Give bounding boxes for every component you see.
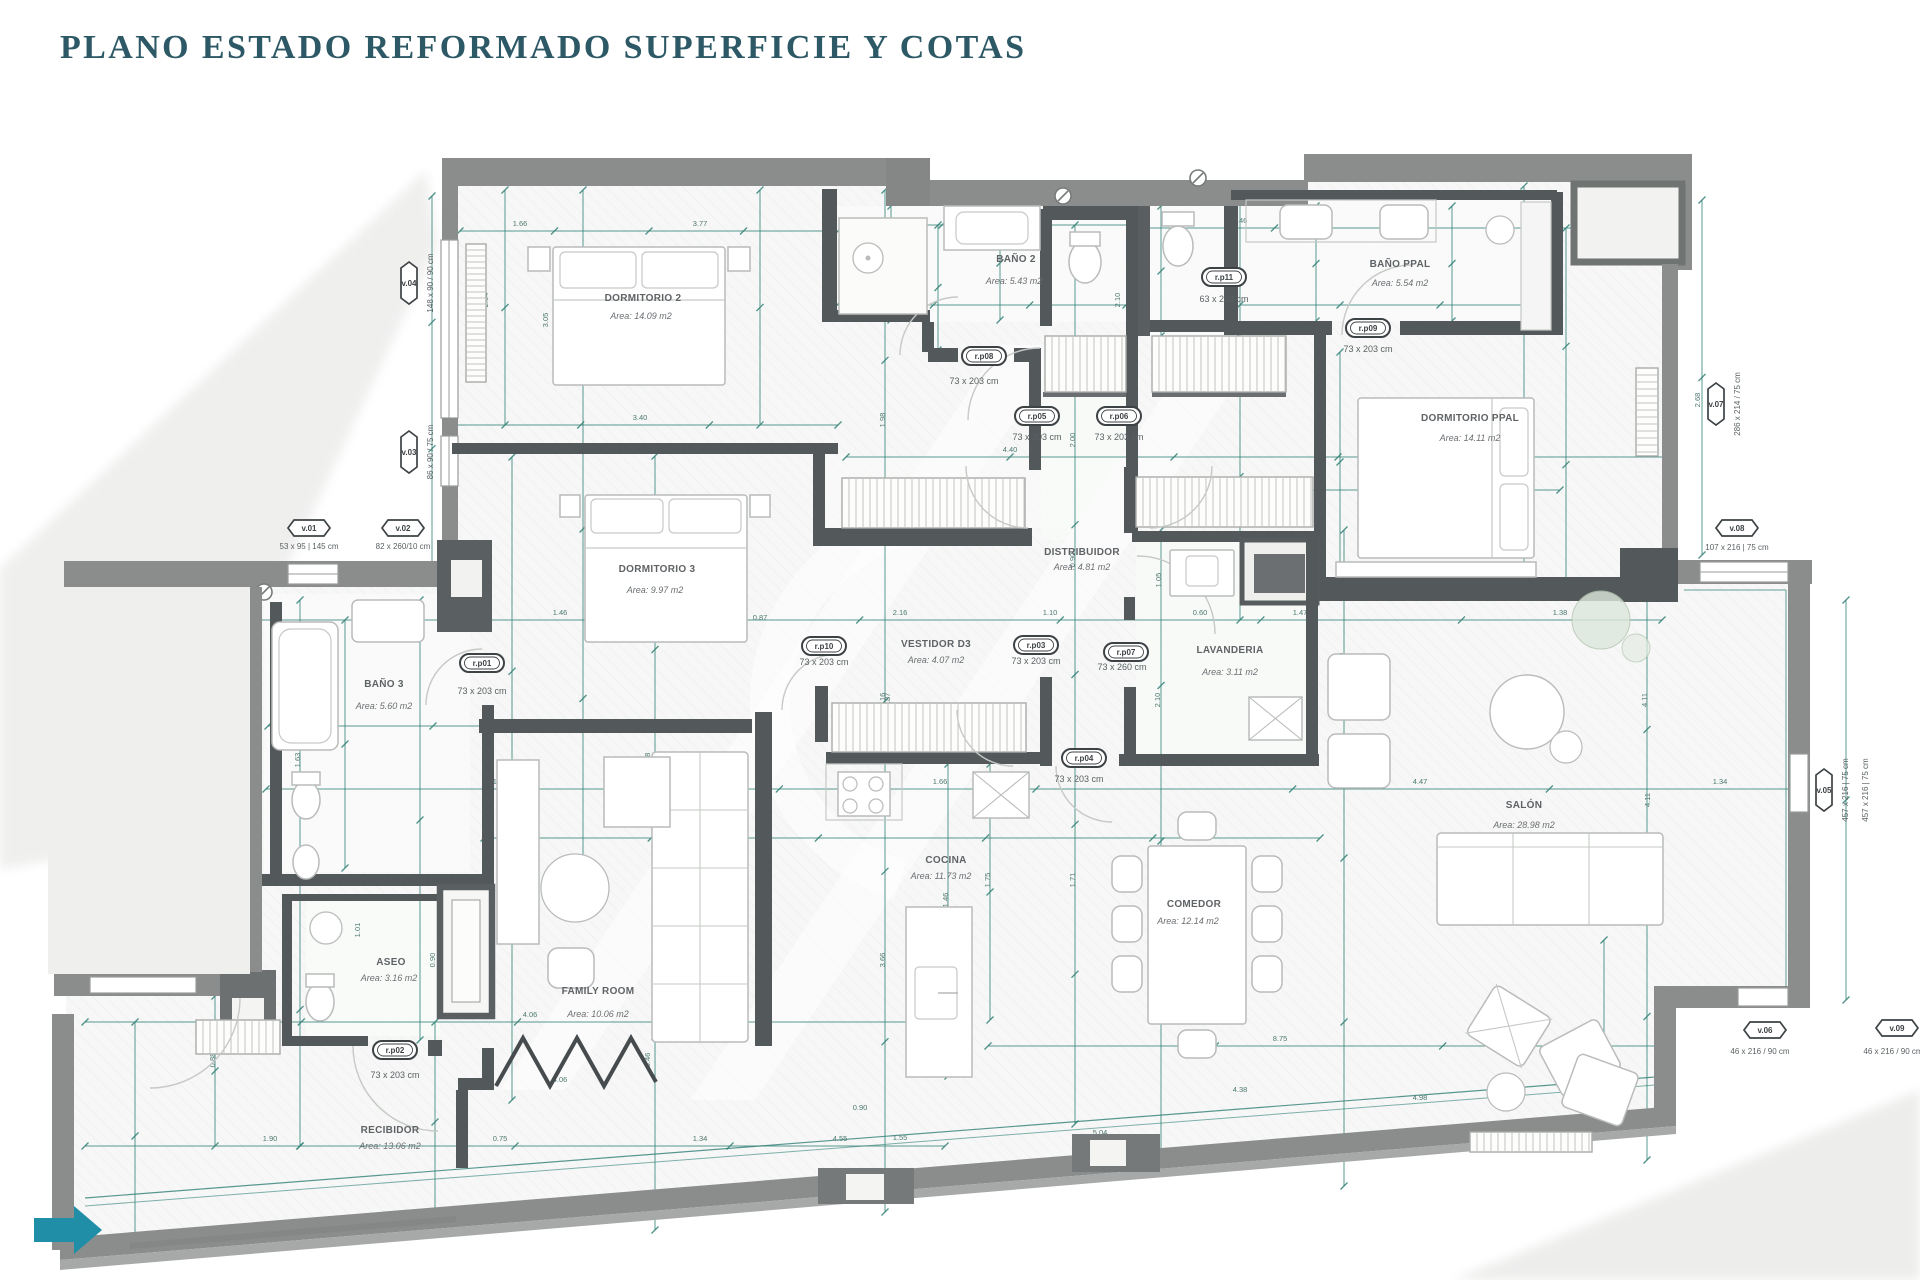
svg-text:RECIBIDOR: RECIBIDOR bbox=[361, 1125, 420, 1136]
svg-text:PLANO ESTADO REFORMADO SUPERFI: PLANO ESTADO REFORMADO SUPERFICIE Y COTA… bbox=[60, 29, 1026, 66]
svg-text:1.71: 1.71 bbox=[1068, 873, 1077, 888]
svg-text:v.06: v.06 bbox=[1758, 1026, 1774, 1035]
svg-text:Area: 12.14 m2: Area: 12.14 m2 bbox=[1156, 916, 1219, 926]
svg-text:457 x 216 | 75 cm: 457 x 216 | 75 cm bbox=[1841, 758, 1850, 822]
svg-text:r.p03: r.p03 bbox=[1027, 641, 1046, 650]
svg-text:r.p01: r.p01 bbox=[473, 659, 492, 668]
svg-text:LAVANDERIA: LAVANDERIA bbox=[1196, 645, 1263, 656]
svg-text:4.38: 4.38 bbox=[1233, 1085, 1248, 1094]
svg-text:2.00: 2.00 bbox=[1068, 433, 1077, 448]
svg-text:BAÑO 3: BAÑO 3 bbox=[364, 677, 404, 690]
svg-text:86 x 90 / 75 cm: 86 x 90 / 75 cm bbox=[426, 424, 435, 479]
svg-text:73 x 203 cm: 73 x 203 cm bbox=[1054, 774, 1103, 784]
svg-text:r.p11: r.p11 bbox=[1215, 273, 1234, 282]
svg-text:r.p05: r.p05 bbox=[1028, 412, 1047, 421]
svg-text:1.63: 1.63 bbox=[293, 753, 302, 768]
svg-text:1.34: 1.34 bbox=[693, 1134, 708, 1143]
svg-text:82 x 260/10 cm: 82 x 260/10 cm bbox=[376, 542, 431, 551]
svg-text:ASEO: ASEO bbox=[376, 957, 406, 968]
svg-text:3.77: 3.77 bbox=[693, 219, 708, 228]
svg-text:4.98: 4.98 bbox=[1413, 1093, 1428, 1102]
svg-text:v.08: v.08 bbox=[1730, 524, 1746, 533]
svg-text:457 x 216 | 75 cm: 457 x 216 | 75 cm bbox=[1861, 758, 1870, 822]
svg-text:63 x 203 cm: 63 x 203 cm bbox=[1199, 294, 1248, 304]
svg-text:0.75: 0.75 bbox=[493, 1134, 508, 1143]
svg-text:73 x 203 cm: 73 x 203 cm bbox=[949, 376, 998, 386]
svg-text:2.16: 2.16 bbox=[893, 608, 908, 617]
svg-text:1.90: 1.90 bbox=[263, 1134, 278, 1143]
svg-text:1.05: 1.05 bbox=[1154, 573, 1163, 588]
svg-text:1.98: 1.98 bbox=[878, 413, 887, 428]
svg-text:Area: 10.06 m2: Area: 10.06 m2 bbox=[566, 1009, 629, 1019]
svg-text:148 x 90 / 90 cm: 148 x 90 / 90 cm bbox=[426, 253, 435, 312]
svg-text:DORMITORIO PPAL: DORMITORIO PPAL bbox=[1421, 413, 1519, 424]
svg-text:r.p08: r.p08 bbox=[975, 352, 994, 361]
svg-text:Area: 28.98 m2: Area: 28.98 m2 bbox=[1492, 820, 1555, 830]
svg-text:4.11: 4.11 bbox=[1643, 793, 1652, 807]
svg-text:Area: 4.81 m2: Area: 4.81 m2 bbox=[1053, 562, 1111, 572]
svg-text:1.10: 1.10 bbox=[1043, 608, 1058, 617]
svg-text:Area: 14.09 m2: Area: 14.09 m2 bbox=[609, 311, 672, 321]
svg-text:BAÑO PPAL: BAÑO PPAL bbox=[1370, 257, 1431, 270]
svg-text:1.66: 1.66 bbox=[933, 777, 948, 786]
svg-text:r.p09: r.p09 bbox=[1359, 324, 1378, 333]
svg-text:1.55: 1.55 bbox=[893, 1133, 908, 1142]
svg-text:4.06: 4.06 bbox=[523, 1010, 538, 1019]
svg-text:Area: 5.43 m2: Area: 5.43 m2 bbox=[985, 276, 1043, 286]
svg-text:3.40: 3.40 bbox=[633, 413, 648, 422]
svg-text:1.38: 1.38 bbox=[1553, 608, 1568, 617]
svg-text:Area: 5.54 m2: Area: 5.54 m2 bbox=[1371, 278, 1429, 288]
svg-text:4.55: 4.55 bbox=[833, 1134, 848, 1143]
svg-text:2.10: 2.10 bbox=[1113, 293, 1122, 308]
svg-text:73 x 203 cm: 73 x 203 cm bbox=[1011, 656, 1060, 666]
svg-text:73 x 203 cm: 73 x 203 cm bbox=[457, 686, 506, 696]
svg-text:v.05: v.05 bbox=[1817, 786, 1833, 795]
svg-text:4.47: 4.47 bbox=[1413, 777, 1428, 786]
svg-text:46 x 216 / 90 cm: 46 x 216 / 90 cm bbox=[1863, 1047, 1920, 1056]
svg-text:73 x 203 cm: 73 x 203 cm bbox=[1343, 344, 1392, 354]
svg-text:r.p04: r.p04 bbox=[1075, 754, 1094, 763]
svg-text:73 x 203 cm: 73 x 203 cm bbox=[1094, 432, 1143, 442]
svg-text:FAMILY ROOM: FAMILY ROOM bbox=[562, 986, 635, 997]
svg-text:0.87: 0.87 bbox=[753, 613, 768, 622]
svg-text:Area: 3.11 m2: Area: 3.11 m2 bbox=[1201, 667, 1258, 677]
svg-text:r.p07: r.p07 bbox=[1117, 648, 1136, 657]
svg-text:73 x 203 cm: 73 x 203 cm bbox=[1012, 432, 1061, 442]
svg-text:1.75: 1.75 bbox=[983, 873, 992, 888]
svg-text:Area: 13.06 m2: Area: 13.06 m2 bbox=[358, 1141, 421, 1151]
svg-text:COMEDOR: COMEDOR bbox=[1167, 899, 1222, 910]
svg-text:2.10: 2.10 bbox=[1153, 693, 1162, 708]
svg-text:v.03: v.03 bbox=[402, 448, 418, 457]
svg-text:1.34: 1.34 bbox=[1713, 777, 1728, 786]
svg-text:DORMITORIO 3: DORMITORIO 3 bbox=[619, 564, 696, 575]
svg-text:r.p10: r.p10 bbox=[815, 642, 834, 651]
svg-text:0.90: 0.90 bbox=[428, 953, 437, 968]
svg-text:0.60: 0.60 bbox=[1193, 608, 1208, 617]
svg-text:0.90: 0.90 bbox=[853, 1103, 868, 1112]
svg-text:Area: 5.60 m2: Area: 5.60 m2 bbox=[355, 701, 413, 711]
svg-text:r.p02: r.p02 bbox=[386, 1046, 405, 1055]
svg-text:Area: 4.07 m2: Area: 4.07 m2 bbox=[907, 655, 965, 665]
svg-text:BAÑO 2: BAÑO 2 bbox=[996, 252, 1036, 265]
svg-text:4.11: 4.11 bbox=[1640, 693, 1649, 707]
svg-text:53 x 95 | 145 cm: 53 x 95 | 145 cm bbox=[280, 542, 339, 551]
svg-text:1.66: 1.66 bbox=[513, 219, 528, 228]
svg-text:3.66: 3.66 bbox=[878, 953, 887, 968]
svg-text:1.01: 1.01 bbox=[353, 923, 362, 938]
svg-text:r.p06: r.p06 bbox=[1110, 412, 1129, 421]
svg-text:1.46: 1.46 bbox=[941, 893, 950, 908]
svg-text:73 x 260 cm: 73 x 260 cm bbox=[1097, 662, 1146, 672]
svg-text:DISTRIBUIDOR: DISTRIBUIDOR bbox=[1044, 547, 1120, 558]
svg-text:Area: 3.16 m2: Area: 3.16 m2 bbox=[360, 973, 418, 983]
svg-text:VESTIDOR D3: VESTIDOR D3 bbox=[901, 639, 971, 650]
svg-text:Area: 14.11 m2: Area: 14.11 m2 bbox=[1439, 433, 1501, 443]
svg-text:v.07: v.07 bbox=[1709, 400, 1725, 409]
svg-text:1.47: 1.47 bbox=[1293, 608, 1308, 617]
svg-text:107 x 216 | 75 cm: 107 x 216 | 75 cm bbox=[1705, 543, 1769, 552]
svg-text:DORMITORIO 2: DORMITORIO 2 bbox=[605, 293, 682, 304]
svg-text:SALÓN: SALÓN bbox=[1506, 798, 1543, 811]
svg-text:Area: 11.73 m2: Area: 11.73 m2 bbox=[910, 871, 972, 881]
svg-text:v.01: v.01 bbox=[302, 524, 318, 533]
svg-text:v.09: v.09 bbox=[1890, 1024, 1906, 1033]
svg-text:8.75: 8.75 bbox=[1273, 1034, 1288, 1043]
svg-text:286 x 214 / 75 cm: 286 x 214 / 75 cm bbox=[1733, 372, 1742, 436]
svg-text:3.05: 3.05 bbox=[541, 313, 550, 328]
svg-text:2.68: 2.68 bbox=[1693, 393, 1702, 408]
svg-text:1.46: 1.46 bbox=[553, 608, 568, 617]
svg-text:4.40: 4.40 bbox=[1003, 445, 1018, 454]
svg-text:COCINA: COCINA bbox=[925, 855, 966, 866]
svg-text:46 x 216 / 90 cm: 46 x 216 / 90 cm bbox=[1730, 1047, 1789, 1056]
svg-text:Area: 9.97 m2: Area: 9.97 m2 bbox=[626, 585, 684, 595]
svg-text:73 x 203 cm: 73 x 203 cm bbox=[799, 657, 848, 667]
svg-text:v.02: v.02 bbox=[396, 524, 412, 533]
svg-text:v.04: v.04 bbox=[402, 279, 418, 288]
svg-text:73 x 203 cm: 73 x 203 cm bbox=[370, 1070, 419, 1080]
